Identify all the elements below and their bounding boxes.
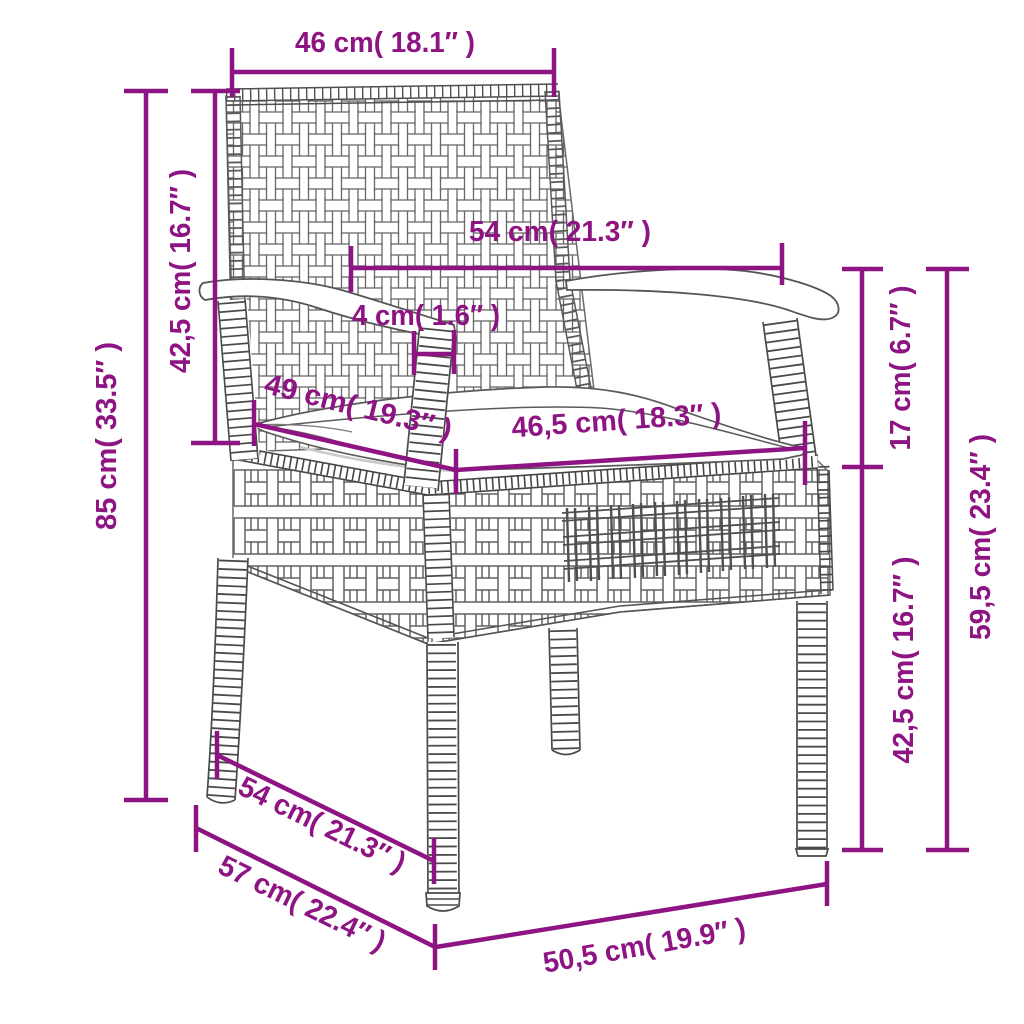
svg-text:54 cm( 21.3″ ): 54 cm( 21.3″ )	[469, 216, 651, 248]
svg-text:4 cm( 1.6″ ): 4 cm( 1.6″ )	[352, 300, 500, 332]
svg-text:42,5 cm( 16.7″ ): 42,5 cm( 16.7″ )	[888, 557, 920, 764]
svg-text:46 cm( 18.1″ ): 46 cm( 18.1″ )	[295, 27, 475, 59]
svg-text:42,5 cm( 16.7″ ): 42,5 cm( 16.7″ )	[165, 169, 197, 373]
svg-text:17 cm( 6.7″ ): 17 cm( 6.7″ )	[885, 286, 917, 451]
svg-text:85 cm( 33.5″ ): 85 cm( 33.5″ )	[91, 342, 123, 530]
svg-text:59,5 cm( 23.4″ ): 59,5 cm( 23.4″ )	[965, 434, 997, 640]
